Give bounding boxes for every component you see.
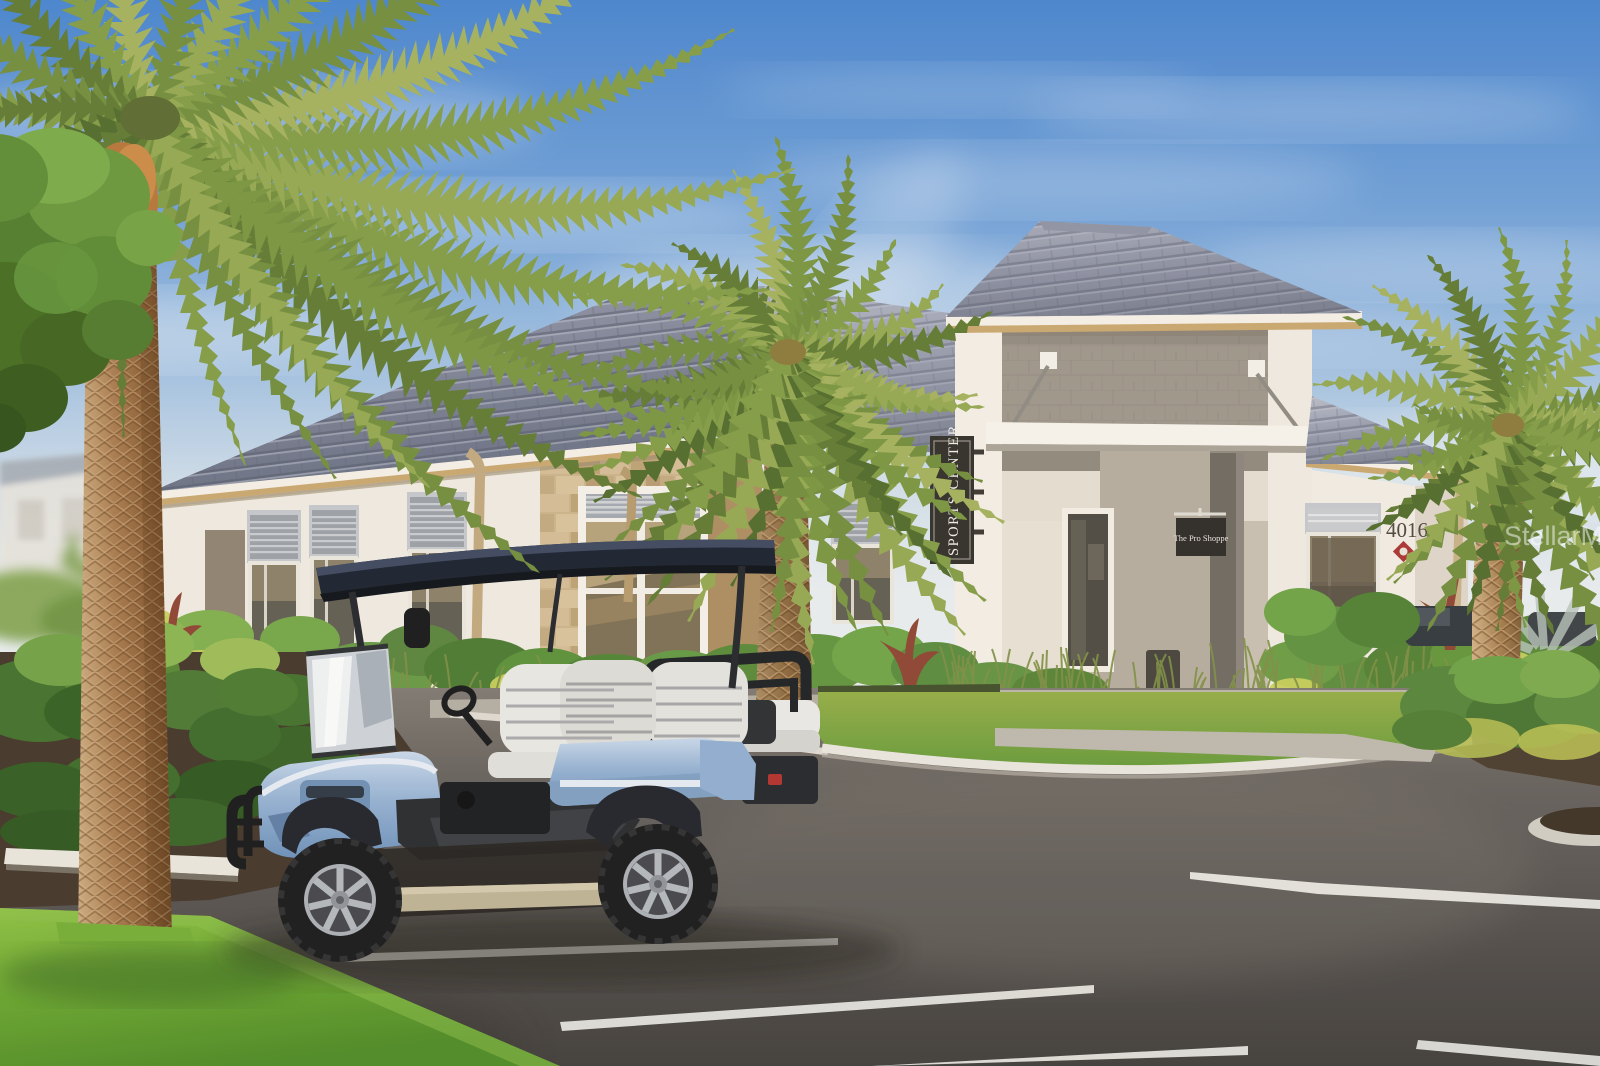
svg-text:StellarMLS: StellarMLS [1504,521,1600,551]
